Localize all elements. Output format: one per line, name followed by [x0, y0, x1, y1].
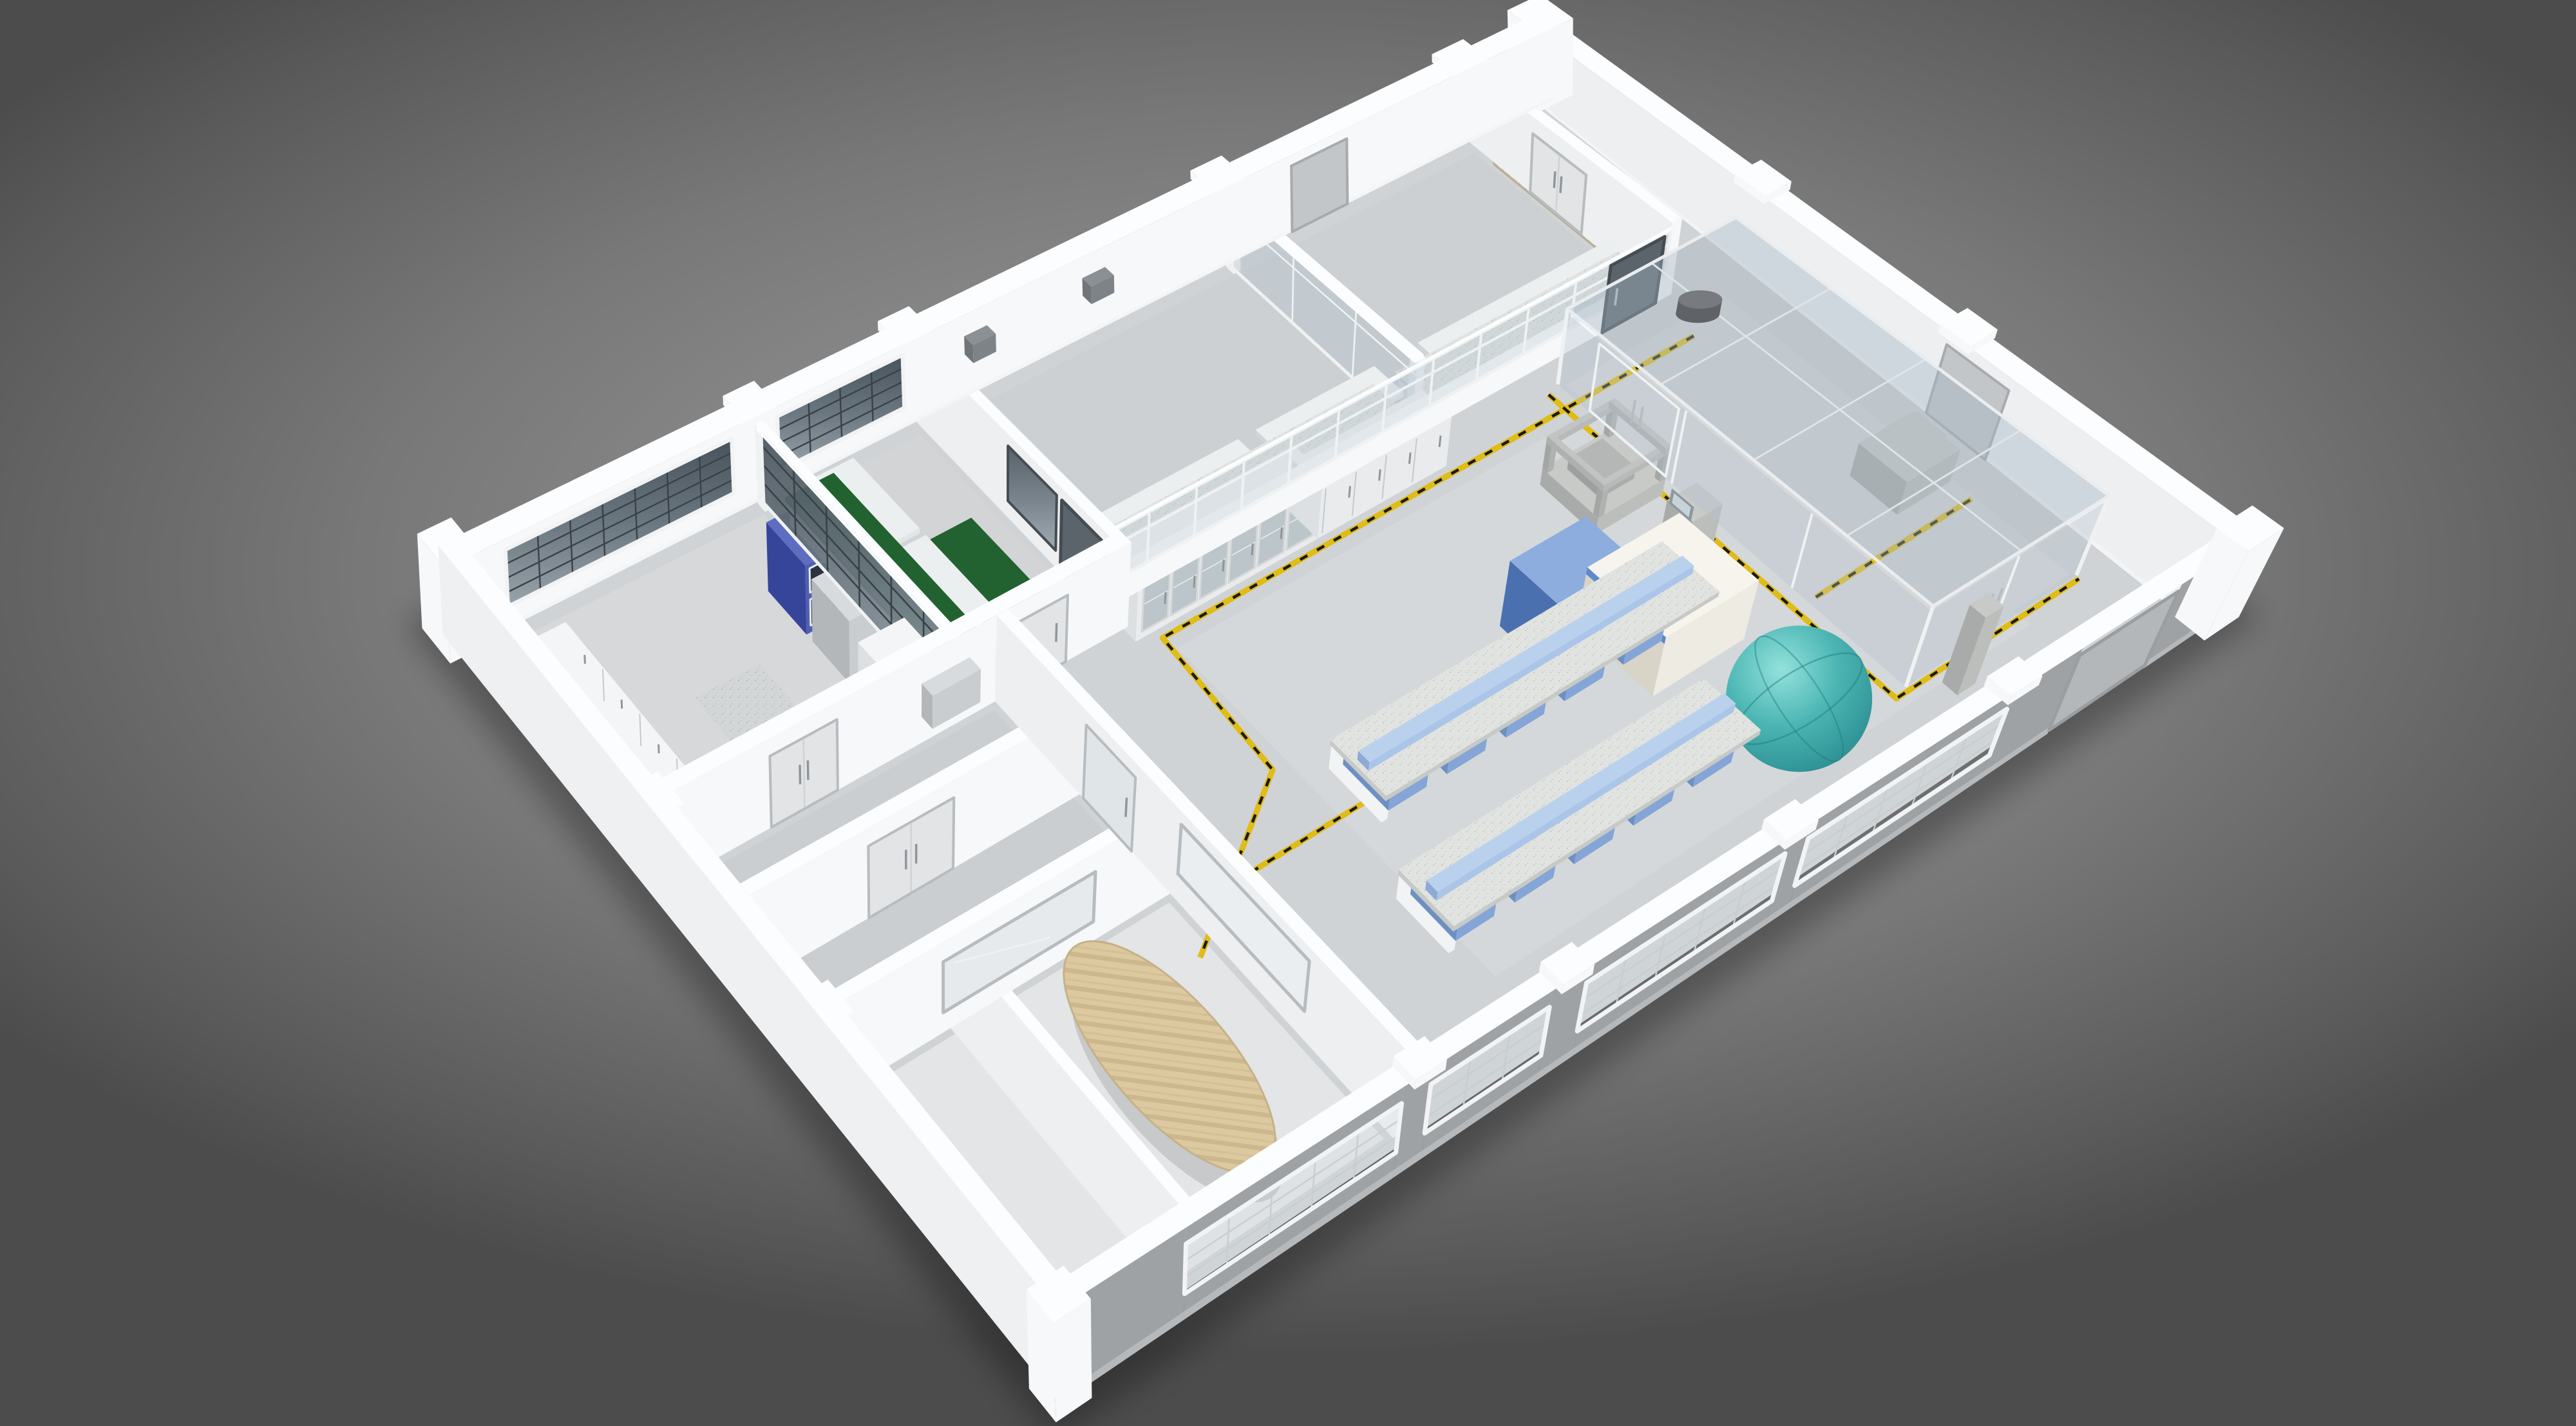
wall-cap-ne-1 [1734, 160, 1792, 204]
isometric-lab-scene [0, 0, 2576, 1426]
ground-layer [405, 59, 2259, 1426]
island-bench-1 [1329, 541, 1719, 822]
floor-meeting-room [857, 902, 1384, 1352]
wall-cap-nw-4 [1432, 39, 1488, 81]
hazard-tape-ne-corridor [1516, 173, 1664, 294]
building-layer [417, 0, 2284, 1422]
floor-corridor [687, 710, 1159, 1082]
equipment-cream-unit [1577, 513, 1759, 696]
wall-exterior-sw [439, 537, 1079, 1404]
hazard-tape-mid-lab [1202, 706, 1520, 903]
bench-room-c [1077, 384, 1410, 604]
wall-cap-ne-2 [1938, 308, 1998, 354]
glass-cubicle [1558, 218, 2109, 687]
corner-pilaster-w [417, 517, 484, 663]
wall-cap-nw-1 [723, 381, 777, 429]
floor-room-a [497, 515, 948, 872]
pass-box [922, 657, 981, 728]
equipment-gray-base [1850, 412, 1960, 515]
render-viewport: 3D isometric cutaway rendering of a labo… [0, 0, 2576, 1426]
floor-cubicle [1566, 296, 2070, 681]
corner-pilaster-n [1508, 0, 1573, 111]
floor-lab-sheen [1177, 350, 2030, 976]
hazard-tape-cubicle-inner [1816, 499, 1972, 598]
curtain-blind [1494, 105, 1625, 267]
corner-pilaster-s [1027, 1266, 1092, 1422]
ground-contact-shadow [405, 59, 2259, 1426]
canopy-room-c1 [1099, 439, 1267, 548]
wall-b-c [914, 335, 1132, 632]
hazard-tape-cubicle-border [1549, 395, 2079, 699]
bench-room-d [1394, 251, 1656, 427]
cupboard-run-glass-doors [1108, 446, 1323, 642]
wall-cap-sw-2 [801, 980, 855, 1038]
control-console [1660, 482, 1723, 560]
open-shelf-room-a [858, 618, 942, 733]
equipment-blue-unit [1500, 517, 1652, 686]
wall-meeting-north [829, 795, 1176, 1095]
wall-corridor-south [740, 697, 1083, 987]
wall-exterior-se [1043, 520, 2261, 1404]
tall-cabinet-steel [811, 555, 897, 684]
partition-cd-front [1091, 227, 1672, 613]
partition-c-d [1225, 191, 1426, 437]
wall-exterior-ne [1522, 12, 2261, 631]
canopy-room-c2 [1255, 366, 1404, 462]
spherical-tank [1723, 625, 1875, 772]
wall-ab-front [656, 537, 1121, 884]
wall-cap-nw-2 [878, 306, 932, 353]
wall-d-corridor [1469, 63, 1682, 299]
cabinet-row-room-a [524, 622, 715, 862]
green-workbench-b1 [785, 473, 996, 698]
frame-cart [1540, 398, 1672, 535]
prep-table-room-a [695, 663, 802, 774]
cupboard-run-solid-doors [1289, 390, 1452, 538]
green-workbench-b2 [915, 518, 1061, 667]
floor-rooms-cd [932, 153, 1651, 605]
wall-cap-se-3 [1761, 799, 1819, 850]
equipment-gray-top [1880, 411, 1946, 466]
floor-base [477, 106, 2183, 1372]
wall-exterior-nw [439, 12, 1559, 654]
wall-cap-sw-1 [632, 772, 685, 828]
tall-cabinet-indigo [766, 498, 855, 635]
canopy-room-d [1417, 239, 1641, 373]
island-bench-2 [1396, 678, 1761, 953]
canopy-shelf-b1 [798, 458, 920, 563]
scene-description: 3D isometric cutaway rendering of a labo… [0, 0, 1, 1]
wall-closet [951, 931, 1189, 1297]
wall-vestibule-lab [995, 609, 1423, 1145]
partition-a-b [755, 421, 962, 722]
conference-table [1030, 909, 1318, 1235]
utility-post [1942, 593, 2004, 696]
wall-cap-se-2 [1539, 942, 1595, 994]
wall-cap-nw-3 [1190, 155, 1245, 199]
hazard-tape-lab-walkway [1162, 336, 1694, 958]
corner-pilaster-e [2175, 506, 2284, 641]
wall-cap-se-1 [1392, 1036, 1447, 1090]
canopy-shelf-b2 [870, 535, 994, 643]
floor-room-b [775, 435, 1107, 713]
wall-cap-se-4 [1984, 656, 2043, 705]
